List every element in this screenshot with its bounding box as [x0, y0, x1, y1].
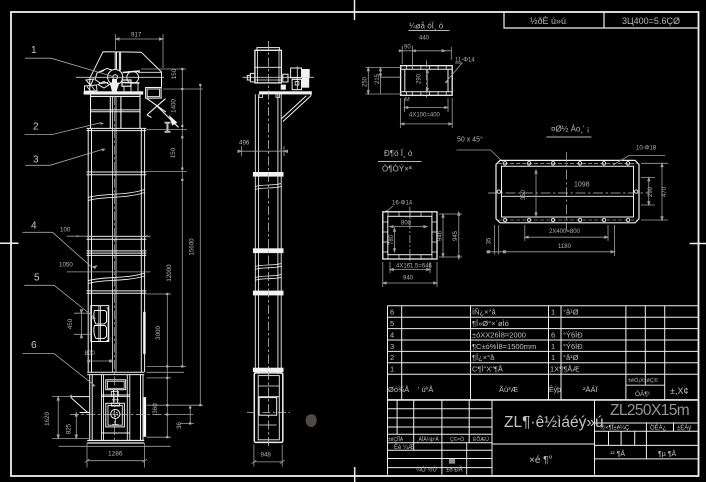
svg-text:Ãû³Æ: Ãû³Æ — [499, 385, 519, 394]
svg-text:780: 780 — [389, 234, 395, 245]
svg-text:917: 917 — [131, 32, 142, 39]
svg-text:15600: 15600 — [189, 238, 196, 256]
svg-text:290: 290 — [648, 186, 654, 197]
svg-text:800: 800 — [85, 350, 96, 357]
svg-text:5: 5 — [34, 273, 40, 284]
svg-text:2X400=800: 2X400=800 — [549, 229, 581, 235]
svg-text:1: 1 — [31, 45, 37, 56]
svg-text:¶µ ¶Å: ¶µ ¶Å — [658, 449, 676, 458]
svg-text:1400: 1400 — [171, 99, 178, 113]
svg-text:±ÈÀý: ±ÈÀý — [677, 425, 691, 432]
svg-text:4: 4 — [31, 221, 37, 232]
svg-text:ÍÑ¿×°å: ÍÑ¿×°å — [472, 308, 496, 317]
svg-text:°Ý6ÌÐ: °Ý6ÌÐ — [563, 342, 583, 351]
svg-text:5: 5 — [390, 319, 394, 328]
svg-text:825: 825 — [66, 423, 73, 434]
svg-text:¶Î¿×°å: ¶Î¿×°å — [472, 353, 495, 362]
svg-text:½×¶Î±ê¼Ç: ½×¶Î±ê¼Ç — [600, 425, 630, 432]
svg-text:1620: 1620 — [44, 412, 51, 426]
svg-text:470: 470 — [662, 186, 668, 197]
svg-text:ZL250X15m: ZL250X15m — [610, 402, 689, 419]
svg-text:Øó¾Å: Øó¾Å — [388, 385, 409, 394]
svg-text:440: 440 — [419, 36, 430, 42]
svg-text:¹² ¶Å: ¹² ¶Å — [610, 449, 625, 458]
svg-text:360: 360 — [152, 403, 159, 414]
svg-text:800: 800 — [401, 221, 412, 227]
svg-text:' úºÅ: ' úºÅ — [418, 385, 433, 394]
svg-text:°Ý6ÌÐ: °Ý6ÌÐ — [563, 330, 583, 339]
svg-text:ÈÕÆÚ: ÈÕÆÚ — [473, 436, 489, 443]
svg-text:M: M — [405, 97, 410, 103]
svg-text:945: 945 — [453, 230, 459, 241]
svg-text:½ðÈ ù»ú: ½ðÈ ù»ú — [530, 16, 566, 26]
svg-text:10-Φ18: 10-Φ18 — [636, 146, 657, 152]
svg-text:ÓÃ¶¹: ÓÃ¶¹ — [635, 389, 651, 398]
svg-text:°å¹Ø: °å¹Ø — [563, 308, 579, 317]
svg-text:496: 496 — [239, 140, 250, 147]
svg-text:2: 2 — [33, 122, 39, 133]
svg-text:1050: 1050 — [59, 262, 73, 269]
svg-text:1: 1 — [551, 308, 555, 317]
svg-text:±êÓ¡X±êÇ©: ±êÓ¡X±êÇ© — [628, 377, 658, 384]
svg-text:940: 940 — [403, 276, 414, 282]
svg-text:¶Î»Ø°×´øÌó: ¶Î»Ø°×´øÌó — [472, 319, 509, 328]
svg-text:Ð¶ó Ï¸ ó: Ð¶ó Ï¸ ó — [384, 149, 413, 158]
svg-text:4X161.5=646: 4X161.5=646 — [396, 264, 433, 270]
svg-text:²ÄÁÏ: ²ÄÁÏ — [583, 385, 599, 394]
svg-text:6: 6 — [390, 308, 394, 317]
svg-text:450: 450 — [67, 318, 74, 329]
svg-text:Ò¶ÒÝ×ª: Ò¶ÒÝ×ª — [382, 165, 412, 174]
svg-text:100: 100 — [60, 227, 71, 234]
svg-text:4X100=400: 4X100=400 — [409, 113, 441, 119]
svg-text:250: 250 — [363, 76, 369, 87]
svg-text:3: 3 — [390, 342, 394, 351]
svg-text:3Ц400=5.6ÇØ: 3Ц400=5.6ÇØ — [622, 16, 680, 26]
svg-text:±ð ÐÅ: ±ð ÐÅ — [446, 467, 463, 474]
svg-text:350: 350 — [521, 189, 527, 200]
svg-text:35: 35 — [487, 237, 493, 244]
svg-text:1180: 1180 — [558, 244, 572, 250]
svg-text:90: 90 — [404, 45, 411, 51]
svg-text:3: 3 — [33, 155, 39, 166]
svg-text:¶C±ó%Ì8=1500mm: ¶C±ó%Ì8=1500mm — [472, 342, 536, 351]
svg-text:1X¶¶ÅÆ: 1X¶¶ÅÆ — [550, 365, 580, 374]
svg-text:215: 215 — [375, 73, 381, 84]
svg-text:290: 290 — [417, 73, 423, 84]
svg-text:¼Ô ½Û: ¼Ô ½Û — [416, 467, 437, 474]
svg-text:¤Ø½ Àо¸' ¡: ¤Ø½ Àо¸' ¡ — [551, 125, 589, 134]
svg-text:1286: 1286 — [108, 451, 123, 458]
svg-text:150: 150 — [171, 68, 178, 79]
svg-text:16-Φ14: 16-Φ14 — [392, 201, 413, 207]
svg-text:°å¹Ø: °å¹Ø — [563, 353, 579, 362]
svg-text:12000: 12000 — [166, 264, 173, 282]
svg-text:1: 1 — [551, 353, 555, 362]
svg-text:ZL¶·ê½ìáéý»ú: ZL¶·ê½ìáéý»ú — [504, 414, 604, 431]
svg-text:±óXX26Ì8=2000: ±óXX26Ì8=2000 — [472, 330, 526, 339]
svg-text:Êýþ: Êýþ — [549, 385, 561, 394]
svg-text:C¶Ì"X"¶Å: C¶Ì"X"¶Å — [472, 365, 503, 374]
svg-text:3000: 3000 — [155, 326, 162, 340]
svg-text:36: 36 — [177, 422, 183, 429]
svg-text:ÖÊÁ¿: ÖÊÁ¿ — [650, 424, 667, 432]
svg-text:1: 1 — [551, 342, 555, 351]
svg-text:±,X¢: ±,X¢ — [670, 386, 688, 396]
svg-text:6: 6 — [31, 340, 37, 351]
svg-text:4: 4 — [390, 330, 394, 339]
svg-text:1098: 1098 — [574, 182, 590, 189]
svg-text:150: 150 — [170, 147, 177, 158]
svg-text:¸ÄÎÄ¼þºÅ: ¸ÄÎÄ¼þºÅ — [417, 436, 440, 443]
svg-text:Ç©×Ö: Ç©×Ö — [450, 436, 464, 443]
svg-text:±êÇÎÎÄ: ±êÇÎÎÄ — [388, 436, 404, 443]
svg-text:50 x 45°: 50 x 45° — [457, 136, 483, 144]
svg-text:Éè ¼Æ: Éè ¼Æ — [394, 444, 414, 451]
svg-text:1: 1 — [390, 365, 394, 374]
svg-text:×é ¶°: ×é ¶° — [529, 455, 553, 466]
svg-text:¼øå óÏ¸ ó: ¼øå óÏ¸ ó — [409, 22, 444, 31]
svg-text:2: 2 — [390, 353, 394, 362]
svg-text:6: 6 — [551, 330, 555, 339]
svg-text:948: 948 — [261, 452, 272, 459]
svg-text:946: 946 — [438, 230, 444, 241]
